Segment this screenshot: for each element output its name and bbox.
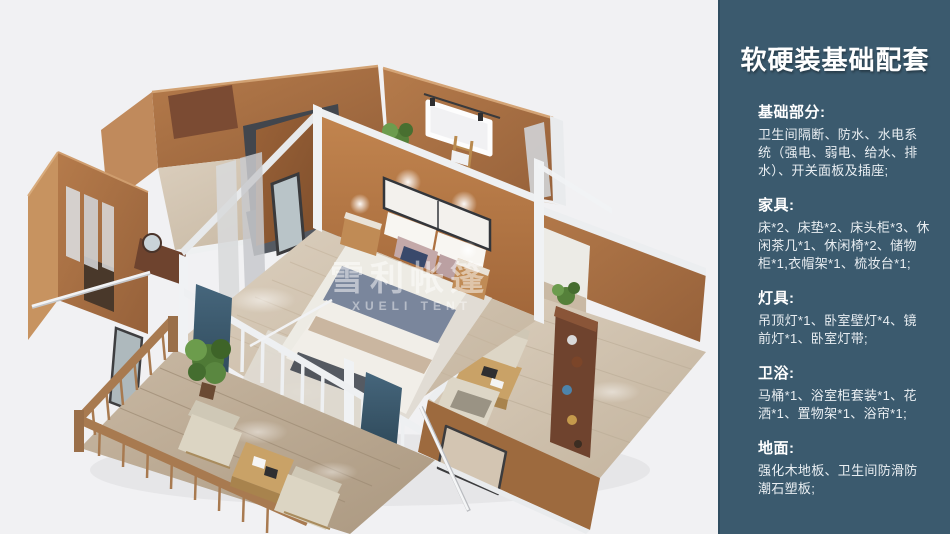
section-flooring: 地面: 强化木地板、卫生间防滑防潮石塑板; [758,437,930,498]
sheer-curtain [66,186,80,262]
round-mirror [143,234,161,252]
tent-floorplan-image: 雪利帐篷 XUELI TENT [0,0,718,534]
watermark-subtext: XUELI TENT [352,299,472,313]
section-body: 吊顶灯*1、卧室壁灯*4、镜前灯*1、卧室灯带; [758,312,930,348]
sideboard [550,306,598,458]
panel-title: 软硬装基础配套 [726,40,944,77]
section-heading: 地面: [758,437,930,458]
panel-sections: 基础部分: 卫生间隔断、防水、水电系统（强电、弱电、给水、排水）、开关面板及插座… [720,101,950,498]
section-body: 强化木地板、卫生间防滑防潮石塑板; [758,462,930,498]
section-furniture: 家具: 床*2、床垫*2、床头柜*3、休闲茶几*1、休闲椅*2、储物柜*1,衣帽… [758,194,930,273]
leaning-mirror [272,174,304,254]
watermark: 雪利帐篷 XUELI TENT [330,260,490,313]
info-panel: 软硬装基础配套 基础部分: 卫生间隔断、防水、水电系统（强电、弱电、给水、排水）… [718,0,950,534]
watermark-text: 雪利帐篷 [330,260,490,298]
section-lighting: 灯具: 吊顶灯*1、卧室壁灯*4、镜前灯*1、卧室灯带; [758,287,930,348]
section-body: 床*2、床垫*2、床头柜*3、休闲茶几*1、休闲椅*2、储物柜*1,衣帽架*1、… [758,219,930,273]
page: 雪利帐篷 XUELI TENT 软硬装基础配套 基础部分: 卫生间隔断、防水、水… [0,0,950,534]
section-heading: 基础部分: [758,101,930,122]
floorplan-render: 雪利帐篷 XUELI TENT [0,0,718,534]
section-heading: 家具: [758,194,930,215]
section-basics: 基础部分: 卫生间隔断、防水、水电系统（强电、弱电、给水、排水）、开关面板及插座… [758,101,930,180]
section-bathroom: 卫浴: 马桶*1、浴室柜套装*1、花洒*1、置物架*1、浴帘*1; [758,362,930,423]
section-heading: 灯具: [758,287,930,308]
section-heading: 卫浴: [758,362,930,383]
section-body: 卫生间隔断、防水、水电系统（强电、弱电、给水、排水）、开关面板及插座; [758,126,930,180]
section-body: 马桶*1、浴室柜套装*1、花洒*1、置物架*1、浴帘*1; [758,387,930,423]
